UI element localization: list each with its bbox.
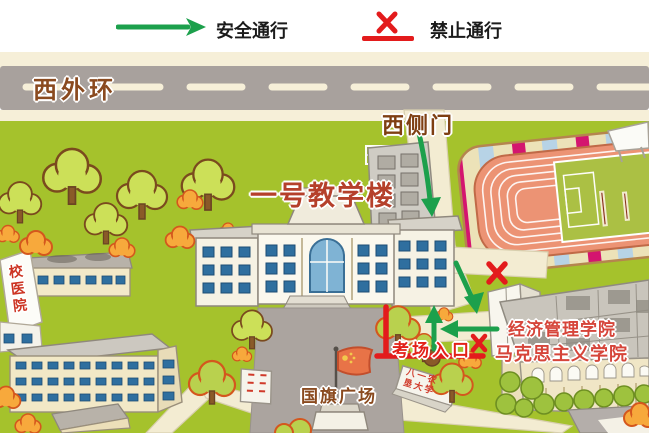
teaching-building-label: 一号教学楼 bbox=[250, 174, 395, 213]
road-label: 西外环 bbox=[33, 70, 117, 105]
slogan-sign bbox=[235, 365, 278, 408]
flag bbox=[338, 347, 372, 374]
west-gate-label: 西侧门 bbox=[382, 108, 454, 140]
legend-forbidden-label: 禁止通行 bbox=[430, 17, 502, 43]
blocked-bar bbox=[362, 36, 414, 41]
marx-college-label: 马克思主义学院 bbox=[495, 340, 628, 366]
blocked-x-icon bbox=[360, 11, 418, 43]
safe-arrow-icon bbox=[116, 16, 208, 38]
teaching-cornice bbox=[252, 224, 400, 234]
flag-plaza-label: 国旗广场 bbox=[301, 382, 377, 407]
exam-entrance-label: 考场入口 bbox=[392, 336, 472, 361]
sidewalk-top bbox=[0, 52, 649, 68]
flag-base bbox=[312, 412, 368, 430]
campus-map: 安全通行 禁止通行 bbox=[0, 0, 649, 433]
legend-safe-label: 安全通行 bbox=[216, 17, 288, 43]
econ-college-label: 经济管理学院 bbox=[508, 315, 616, 340]
building-clinic-annex bbox=[28, 252, 132, 296]
map-canvas: 二号 bbox=[0, 0, 649, 433]
